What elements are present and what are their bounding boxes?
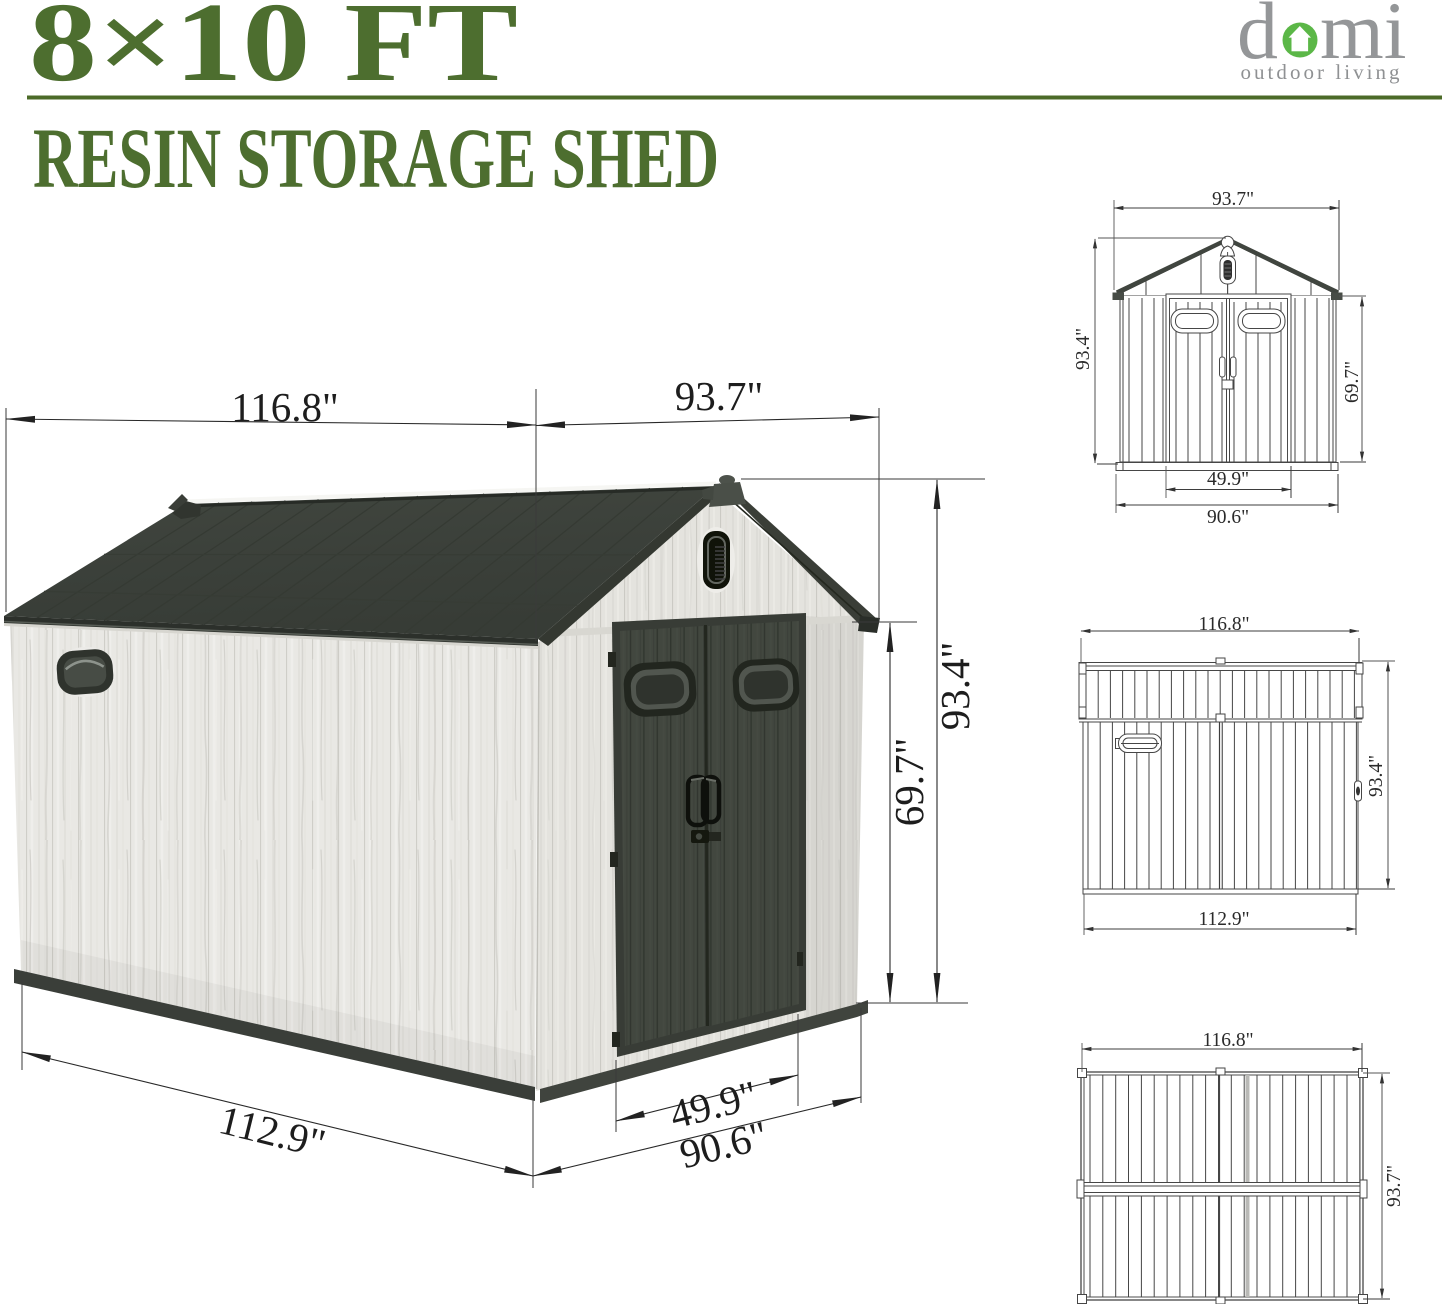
svg-text:116.8": 116.8" bbox=[1198, 614, 1249, 635]
svg-text:outdoor living: outdoor living bbox=[1241, 60, 1404, 84]
svg-text:93.4": 93.4" bbox=[932, 642, 978, 731]
svg-text:49.9": 49.9" bbox=[1207, 469, 1249, 490]
svg-text:8×10 FT: 8×10 FT bbox=[29, 0, 518, 105]
svg-text:116.8": 116.8" bbox=[231, 384, 338, 430]
svg-text:RESIN STORAGE SHED: RESIN STORAGE SHED bbox=[33, 110, 719, 206]
svg-text:69.7": 69.7" bbox=[886, 738, 932, 827]
svg-text:112.9": 112.9" bbox=[1198, 909, 1249, 930]
svg-text:116.8": 116.8" bbox=[1202, 1030, 1253, 1051]
svg-text:93.4": 93.4" bbox=[1073, 328, 1094, 370]
svg-text:93.4": 93.4" bbox=[1366, 755, 1387, 797]
svg-text:93.7": 93.7" bbox=[1212, 189, 1254, 210]
svg-text:112.9": 112.9" bbox=[215, 1096, 330, 1166]
svg-text:93.7": 93.7" bbox=[675, 373, 764, 419]
svg-text:90.6": 90.6" bbox=[1207, 507, 1249, 528]
svg-text:93.7": 93.7" bbox=[1384, 1165, 1405, 1207]
svg-text:69.7": 69.7" bbox=[1342, 361, 1363, 403]
